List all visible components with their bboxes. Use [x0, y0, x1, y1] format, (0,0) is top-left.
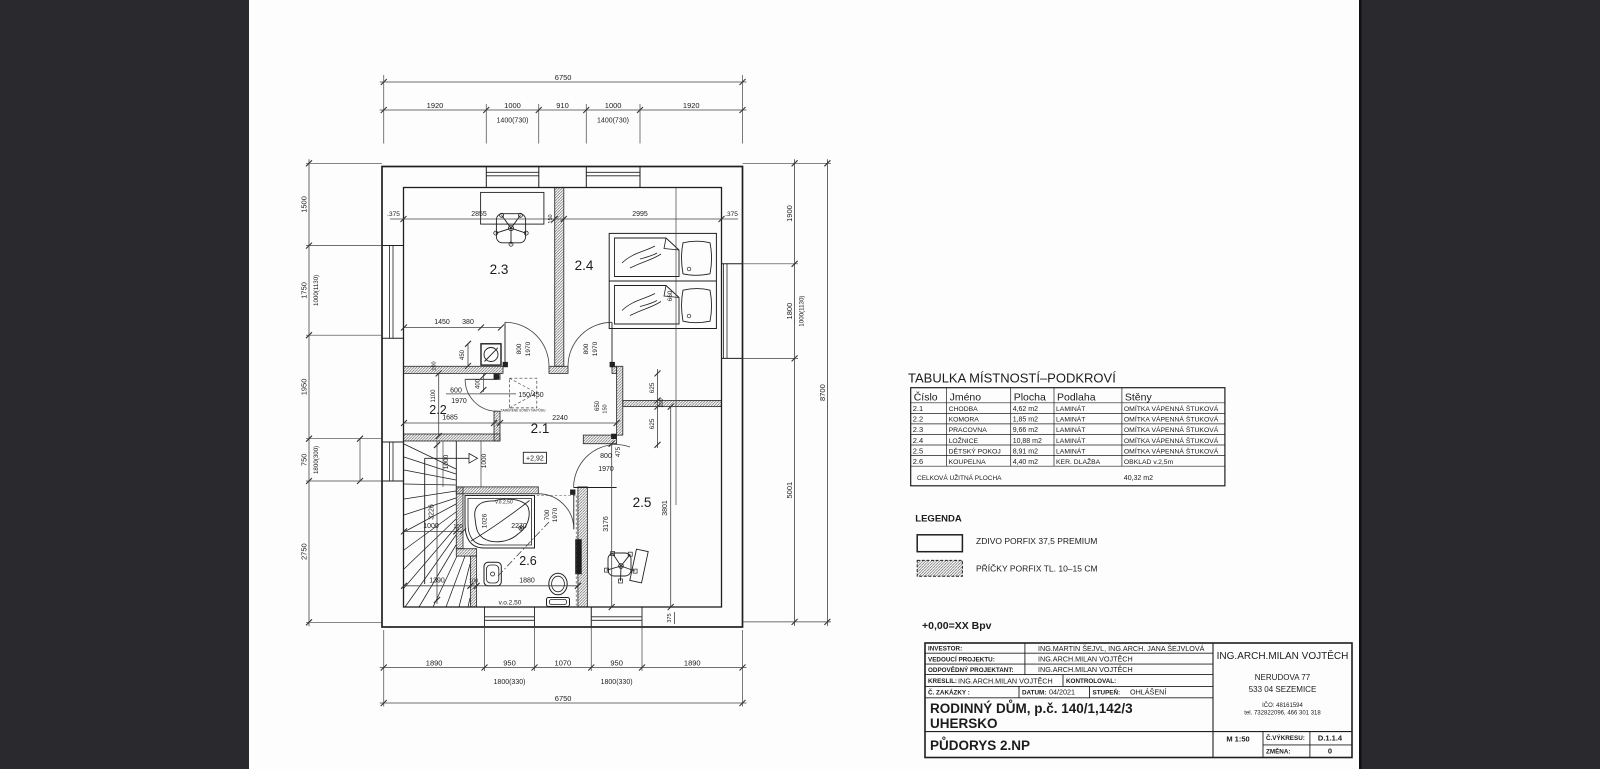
svg-text:3176: 3176 [603, 516, 610, 532]
svg-text:100: 100 [453, 524, 462, 530]
svg-text:5001: 5001 [785, 482, 794, 499]
svg-text:1685: 1685 [442, 415, 458, 422]
svg-text:LEGENDA: LEGENDA [915, 514, 962, 525]
svg-text:6750: 6750 [555, 694, 572, 703]
svg-text:1000(1130): 1000(1130) [799, 295, 806, 326]
svg-text:700: 700 [544, 509, 551, 520]
svg-text:625: 625 [649, 382, 656, 393]
svg-text:2995: 2995 [632, 211, 648, 218]
svg-text:1100: 1100 [431, 389, 437, 403]
svg-text:UHERSKO: UHERSKO [930, 716, 998, 731]
svg-text:INVESTOR:: INVESTOR: [928, 646, 962, 653]
svg-text:M 1:50: M 1:50 [1226, 735, 1249, 744]
svg-text:IČO: 48161594: IČO: 48161594 [1262, 702, 1303, 709]
svg-text:1000: 1000 [443, 454, 450, 469]
svg-text:150: 150 [603, 404, 609, 413]
svg-text:750: 750 [300, 454, 309, 467]
svg-text:1400(730): 1400(730) [497, 118, 529, 125]
svg-text:1500: 1500 [300, 196, 309, 213]
svg-text:475: 475 [616, 446, 622, 457]
svg-text:OMÍTKA VÁPENNÁ ŠTUKOVÁ: OMÍTKA VÁPENNÁ ŠTUKOVÁ [1124, 425, 1219, 434]
svg-text:100: 100 [659, 398, 665, 407]
svg-text:2855: 2855 [471, 211, 487, 218]
svg-text:NERUDOVA 77: NERUDOVA 77 [1255, 673, 1311, 682]
svg-text:40,32 m2: 40,32 m2 [1124, 475, 1153, 482]
svg-text:OMÍTKA VÁPENNÁ ŠTUKOVÁ: OMÍTKA VÁPENNÁ ŠTUKOVÁ [1124, 415, 1219, 424]
svg-text:2.2: 2.2 [913, 415, 923, 424]
svg-text:1450: 1450 [434, 319, 450, 326]
svg-text:1970: 1970 [552, 507, 559, 522]
svg-text:1970: 1970 [451, 398, 467, 405]
svg-text:LOŽNICE: LOŽNICE [949, 436, 979, 445]
svg-text:ING.ARCH.MILAN VOJTĚCH: ING.ARCH.MILAN VOJTĚCH [1038, 655, 1133, 664]
svg-text:380: 380 [462, 319, 474, 326]
svg-text:v.o.2,50: v.o.2,50 [495, 500, 513, 506]
svg-text:6750: 6750 [555, 73, 572, 82]
svg-text:2.1: 2.1 [913, 404, 923, 413]
svg-text:1800: 1800 [785, 303, 794, 320]
svg-text:9,66 m2: 9,66 m2 [1013, 427, 1038, 434]
svg-text:CELKOVÁ UŽITNÁ PLOCHA: CELKOVÁ UŽITNÁ PLOCHA [917, 473, 1002, 482]
svg-text:3801: 3801 [662, 500, 669, 516]
svg-text:910: 910 [556, 101, 569, 110]
svg-text:1400(730): 1400(730) [597, 118, 629, 125]
svg-text:.375: .375 [387, 211, 400, 218]
svg-text:PRACOVNA: PRACOVNA [949, 427, 988, 434]
svg-text:625: 625 [649, 418, 656, 429]
svg-text:375: 375 [667, 613, 673, 622]
svg-text:OBKLAD v.2,5m: OBKLAD v.2,5m [1124, 459, 1174, 466]
svg-text:4,62 m2: 4,62 m2 [1013, 406, 1038, 413]
svg-text:LAMINÁT: LAMINÁT [1056, 415, 1085, 424]
svg-text:1890: 1890 [426, 659, 443, 668]
svg-text:100: 100 [432, 361, 438, 370]
svg-text:950: 950 [610, 659, 623, 668]
svg-text:800: 800 [583, 343, 590, 354]
svg-text:VEDOUCÍ PROJEKTU:: VEDOUCÍ PROJEKTU: [928, 654, 995, 663]
svg-text:DĚTSKÝ POKOJ: DĚTSKÝ POKOJ [949, 446, 1001, 455]
svg-text:2.6: 2.6 [519, 554, 536, 568]
svg-text:KOMORA: KOMORA [949, 417, 980, 424]
svg-text:RODINNÝ DŮM, p.č. 140/1,142/3: RODINNÝ DŮM, p.č. 140/1,142/3 [930, 700, 1133, 716]
svg-text:ZDIVO PORFIX 37,5 PREMIUM: ZDIVO PORFIX 37,5 PREMIUM [976, 536, 1097, 546]
svg-text:2.3: 2.3 [490, 262, 509, 277]
svg-text:3226: 3226 [429, 504, 436, 520]
svg-text:1070: 1070 [555, 659, 572, 668]
svg-text:2.4: 2.4 [575, 258, 594, 273]
svg-text:OMÍTKA VÁPENNÁ ŠTUKOVÁ: OMÍTKA VÁPENNÁ ŠTUKOVÁ [1124, 404, 1219, 413]
svg-text:2.5: 2.5 [633, 495, 652, 510]
svg-text:Plocha: Plocha [1014, 391, 1046, 403]
svg-text:800: 800 [600, 453, 612, 460]
svg-text:OMÍTKA VÁPENNÁ ŠTUKOVÁ: OMÍTKA VÁPENNÁ ŠTUKOVÁ [1124, 446, 1219, 455]
svg-text:2.3: 2.3 [913, 425, 923, 434]
svg-text:1750: 1750 [300, 282, 309, 299]
svg-text:ING.ARCH.MILAN VOJTĚCH: ING.ARCH.MILAN VOJTĚCH [1217, 649, 1349, 662]
svg-text:650: 650 [595, 400, 601, 411]
svg-text:KER. DLAŽBA: KER. DLAŽBA [1056, 457, 1101, 466]
svg-text:LAMINÁT: LAMINÁT [1056, 446, 1085, 455]
svg-text:1800(330): 1800(330) [601, 679, 633, 686]
svg-text:8700: 8700 [818, 384, 827, 401]
svg-text:4,40 m2: 4,40 m2 [1013, 459, 1038, 466]
svg-text:2750: 2750 [300, 543, 309, 560]
svg-text:v.o.2,50: v.o.2,50 [499, 600, 522, 607]
svg-text:DATUM:: DATUM: [1022, 690, 1046, 697]
svg-text:1890: 1890 [684, 659, 701, 668]
svg-text:100: 100 [469, 579, 478, 585]
svg-text:1000: 1000 [504, 101, 521, 110]
svg-text:533 04 SEZEMICE: 533 04 SEZEMICE [1249, 685, 1317, 694]
svg-text:1900: 1900 [785, 205, 794, 222]
svg-text:ING.ARCH.MILAN VOJTĚCH: ING.ARCH.MILAN VOJTĚCH [1038, 665, 1133, 674]
svg-text:ZAMĚŘENÉ SONDY NA PŮDU: ZAMĚŘENÉ SONDY NA PŮDU [501, 408, 547, 413]
svg-text:ING.MARTIN ŠEJVL, ING.ARCH. JA: ING.MARTIN ŠEJVL, ING.ARCH. JANA ŠEJVLOV… [1038, 644, 1205, 653]
svg-text:1000: 1000 [423, 523, 439, 530]
svg-text:1920: 1920 [683, 101, 700, 110]
svg-text:TABULKA MÍSTNOSTÍ–PODKROVÍ: TABULKA MÍSTNOSTÍ–PODKROVÍ [908, 371, 1116, 386]
svg-text:2270: 2270 [511, 523, 527, 530]
svg-text:1950: 1950 [300, 379, 309, 396]
svg-text:LAMINÁT: LAMINÁT [1056, 404, 1085, 413]
svg-text:1800(300): 1800(300) [313, 446, 320, 474]
svg-text:1970: 1970 [525, 341, 532, 356]
svg-text:PŘÍČKY PORFIX TL. 10–15 CM: PŘÍČKY PORFIX TL. 10–15 CM [976, 564, 1098, 574]
svg-text:2.4: 2.4 [913, 436, 923, 445]
svg-text:Stěny: Stěny [1125, 391, 1153, 403]
svg-text:400: 400 [476, 378, 482, 389]
svg-text:ODPOVĚDNÝ PROJEKTANT:: ODPOVĚDNÝ PROJEKTANT: [928, 665, 1014, 674]
svg-text:1000: 1000 [481, 453, 488, 468]
svg-text:STUPEŇ:: STUPEŇ: [1093, 688, 1121, 697]
svg-text:10,88 m2: 10,88 m2 [1013, 438, 1042, 445]
svg-text:Podlaha: Podlaha [1057, 391, 1096, 403]
svg-text:LAMINÁT: LAMINÁT [1056, 436, 1085, 445]
svg-text:1800(330): 1800(330) [494, 679, 526, 686]
svg-text:1920: 1920 [427, 101, 444, 110]
svg-text:OHLÁŠENÍ: OHLÁŠENÍ [1130, 688, 1166, 697]
svg-text:950: 950 [503, 659, 516, 668]
svg-text:450: 450 [460, 349, 466, 360]
svg-text:800: 800 [516, 343, 523, 354]
svg-text:tel. 732822096, 466 301 318: tel. 732822096, 466 301 318 [1244, 711, 1321, 717]
svg-text:600: 600 [450, 388, 462, 395]
svg-text:660: 660 [667, 290, 674, 301]
svg-text:1880: 1880 [519, 578, 535, 585]
svg-text:2.5: 2.5 [913, 446, 923, 455]
svg-text:+2,92: +2,92 [526, 456, 544, 463]
svg-text:OMÍTKA VÁPENNÁ ŠTUKOVÁ: OMÍTKA VÁPENNÁ ŠTUKOVÁ [1124, 436, 1219, 445]
svg-text:1000: 1000 [605, 101, 622, 110]
svg-text:1000(1130): 1000(1130) [313, 275, 320, 306]
svg-text:KONTROLOVAL:: KONTROLOVAL: [1066, 678, 1116, 685]
svg-text:KOUPELNA: KOUPELNA [949, 459, 986, 466]
svg-text:KRESLIL:: KRESLIL: [928, 678, 957, 685]
svg-text:1390: 1390 [429, 578, 445, 585]
svg-text:CHODBA: CHODBA [949, 406, 979, 413]
svg-text:LAMINÁT: LAMINÁT [1056, 425, 1085, 434]
svg-text:1,85 m2: 1,85 m2 [1013, 417, 1038, 424]
svg-text:.375: .375 [725, 211, 738, 218]
svg-text:ZMĚNA:: ZMĚNA: [1266, 747, 1290, 756]
svg-text:ING.ARCH.MILAN VOJTĚCH: ING.ARCH.MILAN VOJTĚCH [958, 676, 1053, 685]
svg-text:+0,00=XX Bpv: +0,00=XX Bpv [922, 620, 992, 632]
svg-text:0: 0 [1328, 747, 1332, 756]
svg-text:2240: 2240 [552, 415, 568, 422]
svg-text:2.6: 2.6 [913, 457, 923, 466]
svg-text:Číslo: Číslo [914, 390, 938, 403]
svg-text:Jméno: Jméno [950, 391, 982, 403]
svg-text:D.1.1.4: D.1.1.4 [1318, 734, 1343, 743]
svg-text:150/450: 150/450 [518, 392, 543, 399]
svg-text:150: 150 [548, 214, 554, 223]
svg-text:1026: 1026 [482, 513, 489, 528]
svg-text:8,91 m2: 8,91 m2 [1013, 448, 1038, 455]
svg-text:1970: 1970 [592, 341, 599, 356]
svg-text:Č.VÝKRESU:: Č.VÝKRESU: [1266, 733, 1305, 742]
svg-text:04/2021: 04/2021 [1049, 688, 1075, 697]
svg-text:Č. ZAKÁZKY :: Č. ZAKÁZKY : [928, 688, 970, 697]
svg-text:PŮDORYS 2.NP: PŮDORYS 2.NP [930, 737, 1030, 753]
